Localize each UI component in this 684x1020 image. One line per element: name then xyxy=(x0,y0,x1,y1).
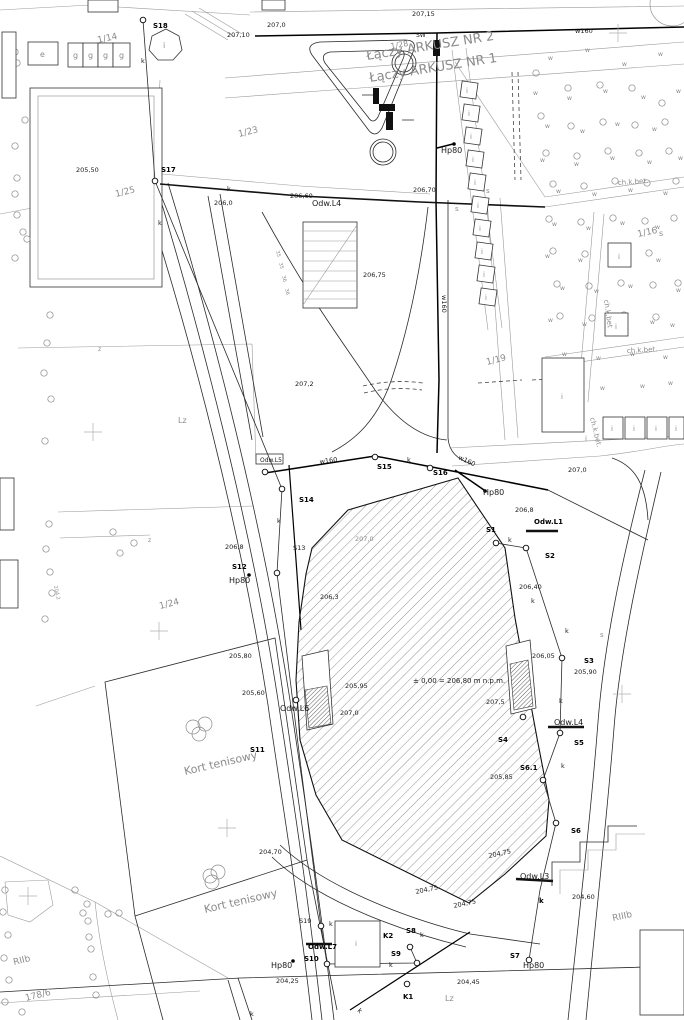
map-label: k xyxy=(227,185,231,193)
building-outline xyxy=(88,0,118,12)
map-label: K1 xyxy=(403,993,413,1001)
map-label: k xyxy=(420,931,424,939)
survey-point xyxy=(324,961,330,967)
survey-point xyxy=(404,981,410,987)
survey-point xyxy=(279,486,285,492)
map-label: 207,0 xyxy=(340,709,359,717)
shrub-mark: w xyxy=(562,351,567,358)
building-outline xyxy=(262,0,285,10)
map-label: g xyxy=(119,51,124,60)
shrub-mark: w xyxy=(540,157,545,164)
shrub-mark: w xyxy=(578,257,583,264)
building-outline xyxy=(466,150,484,168)
map-label: s xyxy=(600,631,604,639)
map-label: ch.k.bet. xyxy=(627,345,658,355)
map-label: i xyxy=(611,425,613,433)
shrub-mark: w xyxy=(615,121,620,128)
map-label: 204,60 xyxy=(572,893,595,901)
map-label: 205,60 xyxy=(242,689,265,697)
map-label: 205,85 xyxy=(490,773,513,781)
map-label: 207,0 xyxy=(267,21,286,29)
shrub-mark: w xyxy=(545,253,550,260)
building-outline xyxy=(0,478,14,530)
map-label: 207,15 xyxy=(412,10,435,18)
survey-point xyxy=(262,469,268,475)
tennis-court-outline xyxy=(30,88,162,287)
map-label: Odw.L4 xyxy=(554,718,583,727)
survey-point xyxy=(293,697,299,703)
building-outline xyxy=(477,265,495,283)
shrub-mark: w xyxy=(640,383,645,390)
survey-point xyxy=(427,465,433,471)
shrub-mark: w xyxy=(610,155,615,162)
map-label: i xyxy=(163,41,165,50)
building-outline xyxy=(464,127,482,145)
building-outline xyxy=(2,32,16,98)
shrub-mark: w xyxy=(658,51,663,58)
map-label: S18 xyxy=(153,22,168,30)
map-label: K2 xyxy=(383,932,393,940)
shrub-mark: w xyxy=(545,123,550,130)
map-label: Odw.L4 xyxy=(312,199,341,208)
map-label: 204,25 xyxy=(276,977,299,985)
map-label: Odw.L7 xyxy=(308,943,337,951)
building-outline xyxy=(479,288,497,306)
map-label: z xyxy=(98,346,101,353)
shrub-mark: w xyxy=(647,159,652,166)
map-label: S4 xyxy=(498,736,508,744)
map-label: 207,10 xyxy=(227,31,250,39)
survey-point xyxy=(540,777,546,783)
map-label: i xyxy=(481,248,483,256)
shrub-mark: w xyxy=(641,94,646,101)
map-label: S9 xyxy=(391,950,401,958)
map-label: 206,70 xyxy=(413,186,436,194)
survey-point xyxy=(553,820,559,826)
shrub-mark: w xyxy=(596,355,601,362)
map-label: k xyxy=(407,456,411,464)
map-label: 205,80 xyxy=(229,652,252,660)
survey-point xyxy=(372,454,378,460)
map-label: 207,5 xyxy=(486,698,505,706)
map-label: S6.1 xyxy=(520,764,538,772)
map-label: w160 xyxy=(440,295,448,313)
shrub-mark: w xyxy=(580,128,585,135)
map-label: i xyxy=(485,294,487,302)
shrub-mark: w xyxy=(620,220,625,227)
map-label: Lz xyxy=(178,416,187,425)
map-label: S19 xyxy=(299,917,311,925)
survey-point xyxy=(318,923,324,929)
map-label: k xyxy=(158,219,162,227)
map-label: z xyxy=(148,537,151,544)
map-label: S15 xyxy=(377,463,392,471)
map-label: S10 xyxy=(304,955,319,963)
map-label: 206,8 xyxy=(225,543,244,551)
map-label: w160 xyxy=(575,27,593,35)
map-label: S13 xyxy=(293,544,305,552)
map-label: S8 xyxy=(406,927,416,935)
map-label: i xyxy=(655,425,657,433)
map-label: S5 xyxy=(574,739,584,747)
building-outline xyxy=(473,219,491,237)
shrub-mark: w xyxy=(552,221,557,228)
shrub-mark: w xyxy=(560,285,565,292)
map-label: i xyxy=(466,87,468,95)
map-label: i xyxy=(477,202,479,210)
survey-point xyxy=(557,730,563,736)
map-label: s xyxy=(659,229,663,238)
map-label: 206,3 xyxy=(320,593,339,601)
shrub-mark: w xyxy=(663,190,668,197)
map-label: k xyxy=(531,597,535,605)
shrub-mark: w xyxy=(600,385,605,392)
shrub-mark: w xyxy=(574,161,579,168)
shrub-mark: w xyxy=(586,225,591,232)
building-outline xyxy=(335,921,380,967)
map-label: 207,2 xyxy=(295,380,314,388)
shrub-mark: w xyxy=(582,321,587,328)
shrub-mark: w xyxy=(592,191,597,198)
map-label: 206,0 xyxy=(214,199,233,207)
survey-point xyxy=(523,545,529,551)
shrub-mark: w xyxy=(556,188,561,195)
shrub-mark: w xyxy=(670,322,675,329)
map-label: Hp80 xyxy=(229,576,250,585)
map-label: 205,90 xyxy=(574,668,597,676)
map-label: S7 xyxy=(510,952,520,960)
map-label: 207,0 xyxy=(355,535,374,543)
shrub-mark: w xyxy=(567,95,572,102)
map-label: k xyxy=(141,57,145,65)
site-plan-map: wwwwwwwwwwwwwwwwwwwwwwwwwwwwwwwwwwwwwwww… xyxy=(0,0,684,1020)
map-label: 205,50 xyxy=(76,166,99,174)
map-label: 205,95 xyxy=(345,682,368,690)
building-outline xyxy=(460,81,478,99)
map-label: k xyxy=(277,517,281,525)
map-label: 204,45 xyxy=(457,978,480,986)
map-label: S16 xyxy=(433,469,448,477)
building-outline xyxy=(475,242,493,260)
map-label: i xyxy=(470,133,472,141)
building-outline xyxy=(0,560,18,608)
building-outline xyxy=(468,173,486,191)
survey-point xyxy=(559,655,565,661)
map-label: Odw.L5 xyxy=(260,457,282,464)
shrub-mark: w xyxy=(533,90,538,97)
map-label: i xyxy=(618,253,620,261)
map-label: 207,0 xyxy=(568,466,587,474)
map-label: i xyxy=(615,323,617,331)
map-label: k xyxy=(565,627,569,635)
shrub-mark: w xyxy=(668,380,673,387)
survey-point xyxy=(520,714,526,720)
shrub-mark: w xyxy=(678,155,683,162)
map-label: SW xyxy=(416,32,426,39)
map-label: Lz xyxy=(445,994,454,1003)
shrub-mark: w xyxy=(656,257,661,264)
map-label: i xyxy=(479,225,481,233)
shrub-mark: w xyxy=(676,287,681,294)
map-label: k xyxy=(250,1010,254,1018)
building-outline xyxy=(647,417,667,439)
building-outline xyxy=(625,417,645,439)
map-label: Odw.L1 xyxy=(534,518,563,526)
map-label: i xyxy=(561,393,563,401)
map-label: S1 xyxy=(486,526,496,534)
map-label: ± 0,00 = 206,80 m n.p.m. xyxy=(413,677,505,685)
shrub-mark: w xyxy=(585,47,590,54)
map-label: Hp80 xyxy=(441,146,462,155)
map-label: g xyxy=(88,51,93,60)
map-label: i xyxy=(474,179,476,187)
map-label: k xyxy=(539,897,544,905)
map-label: g xyxy=(103,51,108,60)
map-label: Hp80 xyxy=(523,961,544,970)
survey-point xyxy=(493,540,499,546)
map-label: i xyxy=(468,110,470,118)
building-outline xyxy=(542,358,584,432)
map-label: S3 xyxy=(584,657,594,665)
map-label: i xyxy=(633,425,635,433)
building-outline xyxy=(471,196,489,214)
site-plan-page: wwwwwwwwwwwwwwwwwwwwwwwwwwwwwwwwwwwwwwww… xyxy=(0,0,684,1020)
map-label: k xyxy=(329,920,333,928)
map-label: Odw.L3 xyxy=(520,872,549,881)
survey-point xyxy=(274,570,280,576)
map-label: S14 xyxy=(299,496,314,504)
map-label: s xyxy=(486,187,490,195)
map-label: 204,70 xyxy=(259,848,282,856)
shrub-mark: w xyxy=(628,283,633,290)
shrub-mark: w xyxy=(652,126,657,133)
map-label: g xyxy=(73,51,78,60)
map-label: 206,60 xyxy=(290,192,313,200)
map-label: 206,8 xyxy=(515,506,534,514)
map-label: i xyxy=(675,425,677,433)
shrub-mark: w xyxy=(676,88,681,95)
map-label: S17 xyxy=(161,166,176,174)
shrub-mark: w xyxy=(622,61,627,68)
map-label: 206,75 xyxy=(363,271,386,279)
map-label: S2 xyxy=(545,552,555,560)
map-label: i xyxy=(472,156,474,164)
shrub-mark: w xyxy=(548,317,553,324)
map-label: k xyxy=(559,697,563,705)
map-label: 206,05 xyxy=(532,652,555,660)
shrub-mark: w xyxy=(548,55,553,62)
shrub-mark: w xyxy=(650,319,655,326)
map-label: Odw.L6 xyxy=(280,704,309,713)
map-label: Hp80 xyxy=(483,488,504,497)
shrub-mark: w xyxy=(594,288,599,295)
map-label: i xyxy=(585,435,587,443)
map-label: e xyxy=(40,50,45,59)
shrub-mark: w xyxy=(663,354,668,361)
building-outline xyxy=(640,930,684,1015)
map-label: S12 xyxy=(232,563,247,571)
map-label: i xyxy=(355,940,357,948)
building-outline xyxy=(462,104,480,122)
map-label: s xyxy=(455,205,459,213)
map-label: k xyxy=(508,536,512,544)
shrub-mark: w xyxy=(628,187,633,194)
map-label: S6 xyxy=(571,827,581,835)
survey-point xyxy=(140,17,146,23)
building-outline xyxy=(603,417,623,439)
survey-point xyxy=(414,960,420,966)
map-label: k xyxy=(389,961,393,969)
map-label: i xyxy=(483,271,485,279)
map-label: Hp80 xyxy=(271,961,292,970)
survey-point xyxy=(152,178,158,184)
survey-point xyxy=(407,944,413,950)
shrub-mark: w xyxy=(603,88,608,95)
map-label: 206,40 xyxy=(519,583,542,591)
map-label: k xyxy=(561,762,565,770)
